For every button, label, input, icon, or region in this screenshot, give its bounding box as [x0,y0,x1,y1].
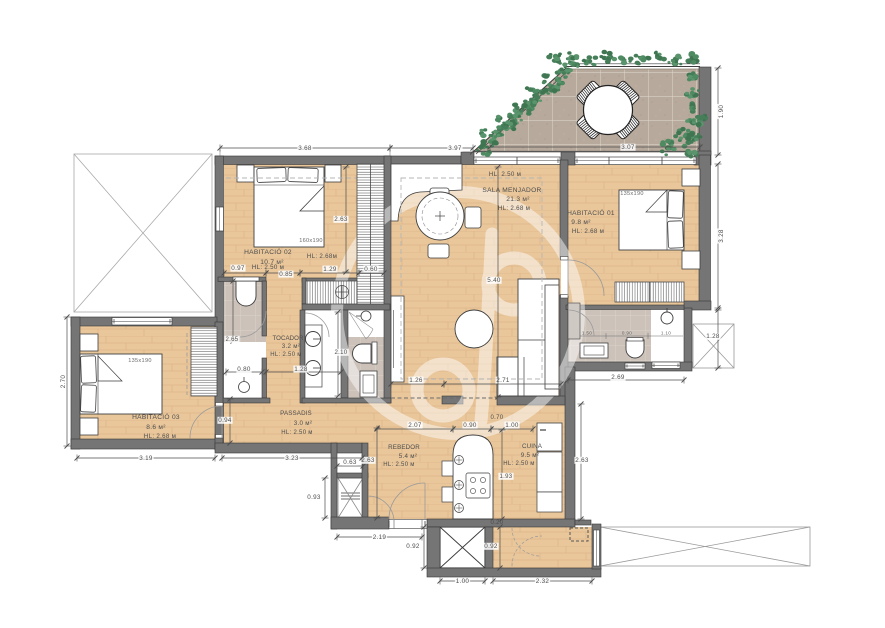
svg-text:2.65: 2.65 [226,337,239,343]
svg-text:0.92: 0.92 [406,543,420,550]
svg-text:2.63: 2.63 [361,457,375,464]
svg-text:0.93: 0.93 [307,494,321,501]
svg-text:HL: 2.50 м: HL: 2.50 м [270,352,301,358]
svg-text:HABITACIÓ 02: HABITACIÓ 02 [244,247,292,256]
svg-text:HABITACIÓ 03: HABITACIÓ 03 [132,412,180,421]
svg-text:0.70: 0.70 [491,415,504,421]
svg-text:2.19: 2.19 [373,534,387,541]
svg-text:CUINA: CUINA [522,443,543,450]
svg-text:1.28: 1.28 [294,366,308,373]
svg-text:0.92: 0.92 [484,543,498,550]
svg-text:5.4 м²: 5.4 м² [399,453,417,460]
svg-text:0.60: 0.60 [364,266,378,273]
svg-text:HABITACIÓ 01: HABITACIÓ 01 [567,208,615,217]
svg-text:HL: 2.68 м: HL: 2.68 м [498,205,530,212]
svg-text:1.29: 1.29 [323,266,337,273]
svg-text:5.40: 5.40 [487,277,501,284]
svg-text:HL: 2.50 м: HL: 2.50 м [383,462,414,468]
svg-text:REBEDOR: REBEDOR [388,444,420,451]
svg-text:2.07: 2.07 [408,422,422,429]
svg-text:3.07: 3.07 [621,144,635,151]
svg-text:HL: 2.68 м: HL: 2.68 м [144,433,176,440]
svg-text:135x190: 135x190 [128,358,152,364]
svg-text:21.3 м²: 21.3 м² [506,196,530,203]
svg-text:3.2 м²: 3.2 м² [282,343,300,350]
svg-text:3.23: 3.23 [285,455,299,462]
svg-text:HL: 2.68м: HL: 2.68м [307,253,337,260]
svg-text:SALA MENJADOR: SALA MENJADOR [482,187,541,194]
svg-text:3.68: 3.68 [298,145,312,152]
svg-text:PASSADIS: PASSADIS [280,410,312,417]
svg-text:3.97: 3.97 [448,145,462,152]
svg-text:0.90: 0.90 [622,331,632,336]
svg-text:8.6 м²: 8.6 м² [146,424,166,431]
svg-text:1.00: 1.00 [456,578,470,585]
svg-text:2.63: 2.63 [575,457,589,464]
svg-text:3.28: 3.28 [718,229,725,243]
svg-text:1.00: 1.00 [505,422,519,429]
svg-text:HL: 2.68 м: HL: 2.68 м [572,228,604,235]
svg-text:HL: 2.50 м: HL: 2.50 м [503,461,534,467]
svg-text:2.10: 2.10 [335,350,348,356]
svg-text:160x190: 160x190 [299,238,323,244]
svg-text:0.94: 0.94 [218,417,232,424]
svg-text:0.90: 0.90 [463,422,477,429]
svg-text:HL: 2.50 м: HL: 2.50 м [252,264,284,271]
svg-text:3.0 м²: 3.0 м² [294,420,312,427]
svg-text:135x190: 135x190 [620,191,644,197]
svg-text:2.32: 2.32 [536,578,550,585]
svg-text:0.97: 0.97 [231,265,245,272]
svg-text:1.93: 1.93 [500,474,513,480]
svg-text:TOCADOR: TOCADOR [272,335,304,342]
svg-text:0.63: 0.63 [343,459,357,466]
svg-text:0.20: 0.20 [491,520,504,526]
svg-text:2.70: 2.70 [60,375,67,389]
svg-text:0.80: 0.80 [237,366,251,373]
svg-text:HL: 2.50 м: HL: 2.50 м [489,171,521,178]
svg-text:1.26: 1.26 [409,377,423,384]
svg-text:0.85: 0.85 [279,271,293,278]
svg-text:2.63: 2.63 [334,216,348,223]
svg-text:HL: 2.50 м: HL: 2.50 м [281,430,312,436]
svg-text:2.69: 2.69 [611,374,625,381]
svg-text:1.90: 1.90 [718,105,725,119]
svg-text:3.19: 3.19 [139,455,153,462]
svg-text:9.5 м²: 9.5 м² [521,452,539,459]
svg-text:1.50: 1.50 [582,331,592,336]
svg-text:9.8 м²: 9.8 м² [571,219,591,226]
svg-text:1.28: 1.28 [706,333,720,340]
svg-text:1.10: 1.10 [661,331,671,336]
